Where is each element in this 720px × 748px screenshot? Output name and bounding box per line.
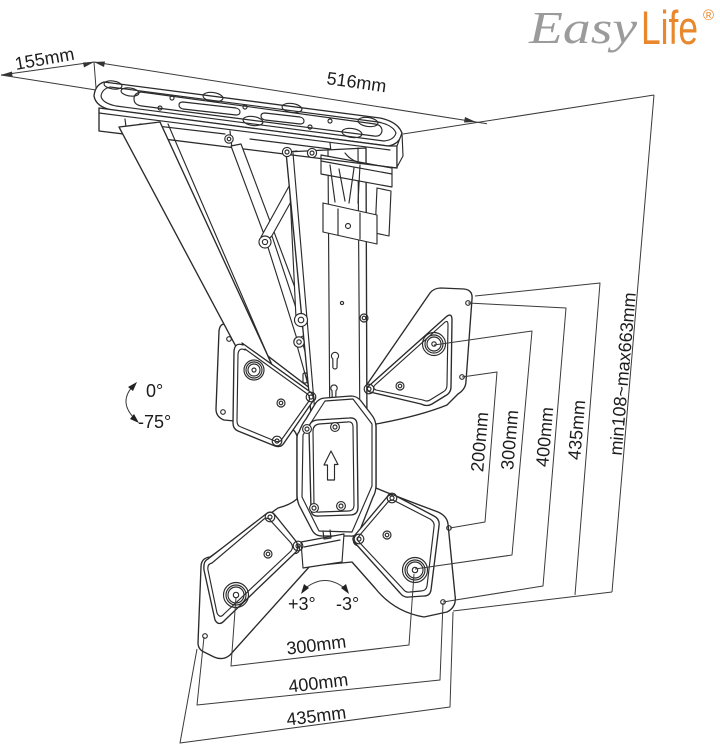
svg-text:+3°: +3° bbox=[288, 594, 316, 614]
svg-text:Life: Life bbox=[641, 1, 698, 54]
svg-text:-75°: -75° bbox=[138, 412, 171, 432]
svg-text:-3°: -3° bbox=[336, 594, 359, 614]
svg-text:®: ® bbox=[703, 7, 714, 24]
svg-text:0°: 0° bbox=[146, 381, 163, 401]
svg-text:Easy: Easy bbox=[528, 2, 638, 53]
